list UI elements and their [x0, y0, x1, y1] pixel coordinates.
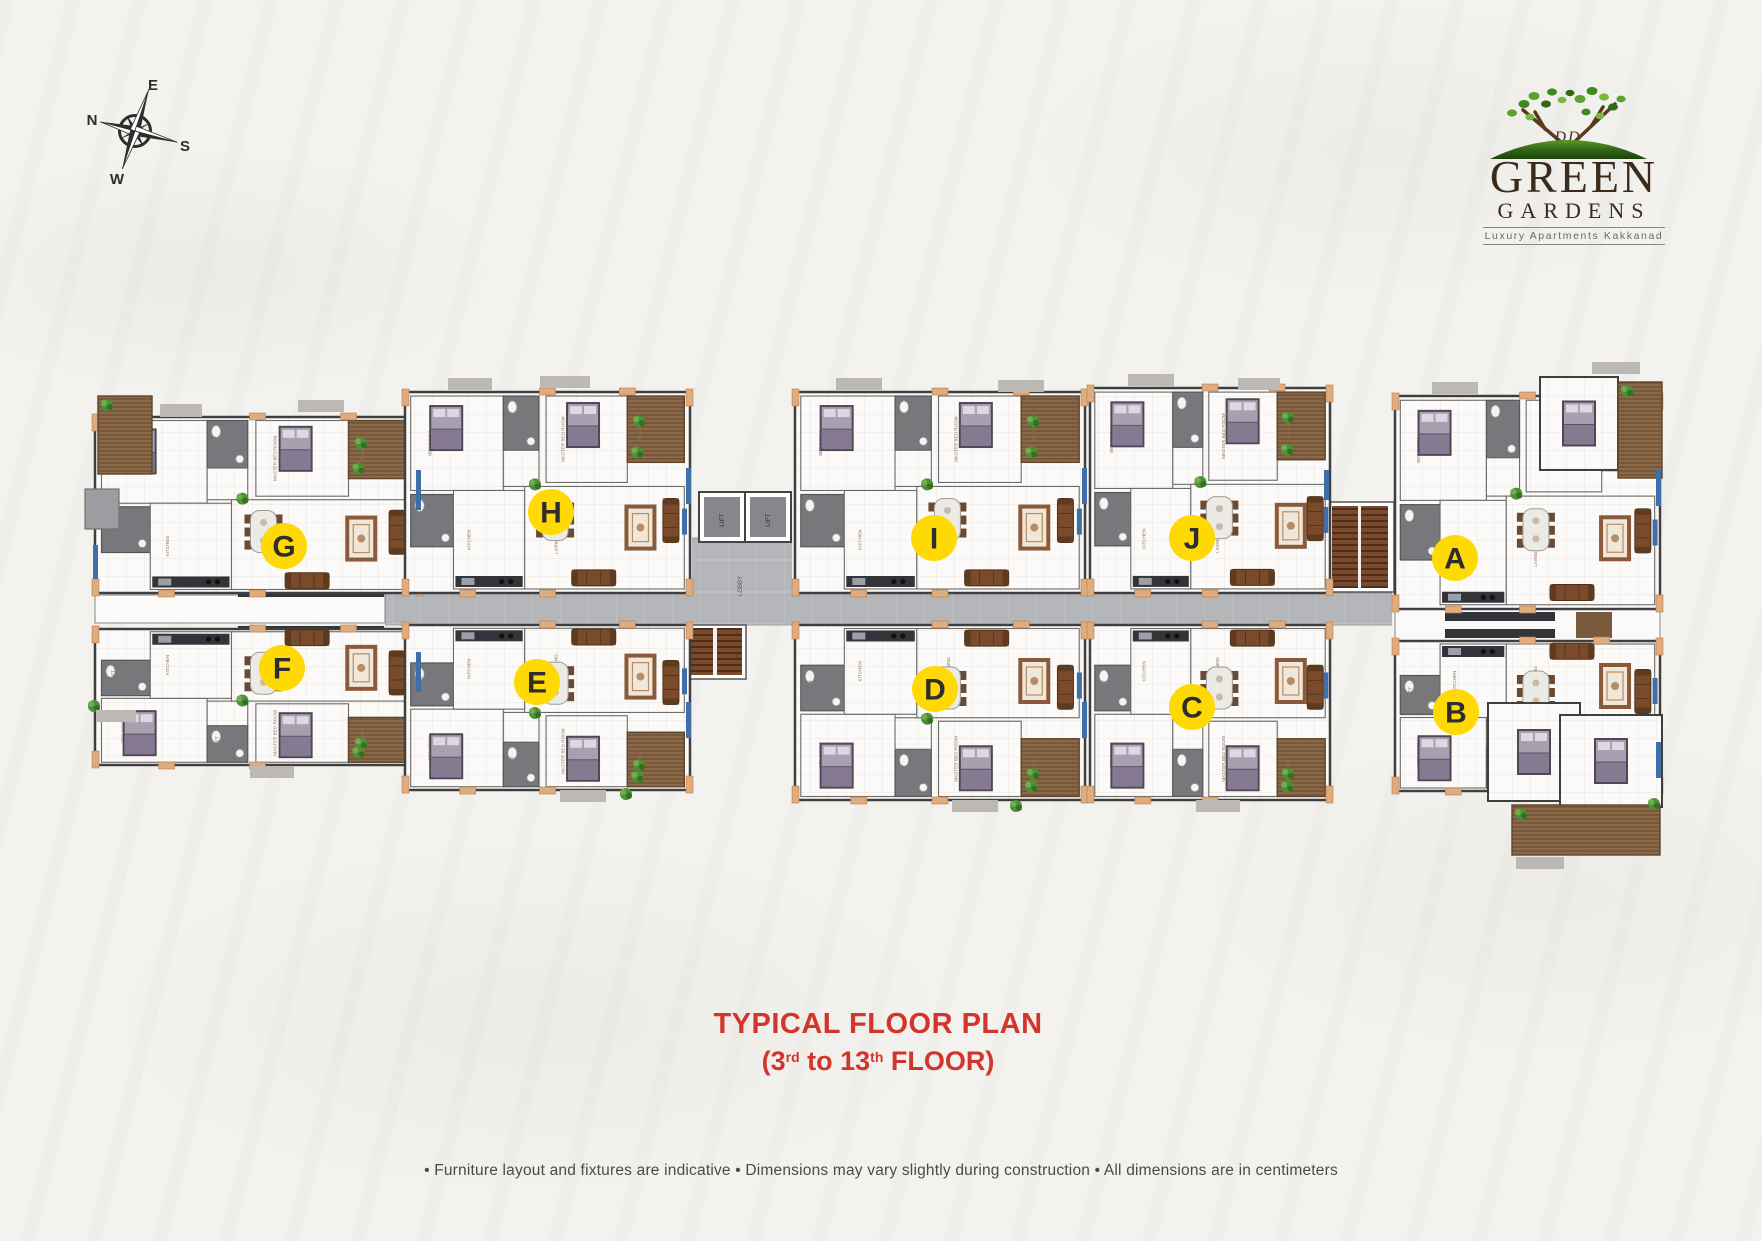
room-label-toilet: TOILET: [1492, 421, 1497, 437]
logo-line1: GREEN: [1474, 156, 1674, 198]
room-label-toilet: TOILET: [418, 512, 423, 528]
room-label-toilet: TOILET: [1178, 765, 1183, 781]
apartment-E: BED ROOMTOILETMASTER BED ROOMBALCONYTOIL…: [402, 621, 693, 794]
lift-label: LIFT: [719, 513, 726, 526]
room-label-kitchen: KITCHEN: [857, 661, 862, 681]
room-label-kitchen: KITCHEN: [466, 530, 471, 550]
unit-marker-J[interactable]: J: [1169, 515, 1215, 561]
room-label-mbed: MASTER BED ROOM: [273, 710, 278, 756]
room-label-toilet: TOILET: [214, 436, 219, 452]
lift-core: LIFT LIFT: [699, 492, 791, 542]
room-label-toilet: TOILET: [1178, 412, 1183, 428]
unit-marker-A[interactable]: A: [1432, 535, 1478, 581]
room-label-toilet: TOILET: [809, 512, 814, 528]
room-label-toilet: TOILET: [110, 670, 115, 686]
room-label-toilet: TOILET: [1407, 687, 1412, 703]
unit-marker-C[interactable]: C: [1169, 684, 1215, 730]
room-label-toilet: TOILET: [214, 736, 219, 752]
compass-n: N: [87, 112, 98, 129]
logo: GREEN GARDENS Luxury Apartments Kakkanad: [1474, 156, 1674, 245]
apartment-D: BED ROOMTOILETMASTER BED ROOMBALCONYTOIL…: [792, 621, 1088, 804]
compass-w: W: [110, 171, 125, 188]
apartment-F: BED ROOMTOILETMASTER BED ROOMBALCONYTOIL…: [92, 625, 423, 769]
unit-marker-label: D: [924, 674, 946, 707]
plan-title: TYPICAL FLOOR PLAN (3rd to 13th FLOOR): [578, 1008, 1178, 1077]
room-label-kitchen: KITCHEN: [1452, 671, 1457, 691]
logo-line2: GARDENS: [1474, 199, 1674, 223]
page: LOBBY LIFT LIFT: [0, 0, 1762, 1241]
compass-e: E: [148, 77, 158, 94]
room-label-kitchen: KITCHEN: [165, 536, 170, 556]
lobby-label: LOBBY: [738, 576, 744, 596]
room-label-mbed: MASTER BED ROOM: [561, 728, 566, 774]
unit-marker-D[interactable]: D: [912, 666, 958, 712]
room-label-mbed: MASTER BED ROOM: [561, 416, 566, 462]
room-label-mbed: MASTER BED ROOM: [953, 736, 958, 782]
unit-marker-label: C: [1181, 692, 1203, 725]
room-label-kitchen: KITCHEN: [466, 659, 471, 679]
logo-tagline: Luxury Apartments Kakkanad: [1483, 227, 1666, 245]
unit-marker-label: A: [1444, 543, 1466, 576]
unit-marker-label: I: [930, 523, 938, 556]
compass-s: S: [180, 138, 190, 155]
unit-marker-label: E: [527, 667, 547, 700]
unit-marker-label: F: [273, 653, 291, 686]
room-label-toilet: TOILET: [510, 756, 515, 772]
apartment-J: BED ROOMTOILETMASTER BED ROOMBALCONYTOIL…: [1087, 384, 1333, 597]
compass: N E S W: [87, 77, 190, 188]
unit-marker-I[interactable]: I: [911, 515, 957, 561]
logo-leaves: [1507, 87, 1626, 120]
unit-marker-label: J: [1184, 523, 1201, 556]
room-label-kitchen: KITCHEN: [857, 530, 862, 550]
logo-art: DD: [1490, 87, 1647, 159]
unit-marker-G[interactable]: G: [261, 523, 307, 569]
unit-marker-F[interactable]: F: [259, 645, 305, 691]
unit-marker-label: G: [272, 531, 295, 564]
room-label-toilet: TOILET: [1101, 680, 1106, 696]
staircase-right: [1328, 502, 1394, 592]
room-label-mbed: MASTER BED ROOM: [953, 416, 958, 462]
room-label-kitchen: KITCHEN: [165, 655, 170, 675]
room-label-toilet: TOILET: [902, 415, 907, 431]
room-label-toilet: TOILET: [902, 765, 907, 781]
lift-label: LIFT: [765, 513, 772, 526]
unit-marker-label: H: [540, 497, 562, 530]
room-label-kitchen: KITCHEN: [1142, 661, 1147, 681]
room-label-toilet: TOILET: [1101, 511, 1106, 527]
room-label-toilet: TOILET: [809, 680, 814, 696]
room-label-mbed: MASTER BED ROOM: [273, 435, 278, 481]
plan-title-line2: (3rd to 13th FLOOR): [578, 1046, 1178, 1077]
unit-marker-label: B: [1445, 697, 1467, 730]
right-cluster-divider: [1395, 609, 1660, 641]
footnote: • Furniture layout and fixtures are indi…: [0, 1162, 1762, 1180]
unit-marker-B[interactable]: B: [1433, 689, 1479, 735]
room-label-mbed: MASTER BED ROOM: [1221, 736, 1226, 782]
room-label-toilet: TOILET: [1407, 524, 1412, 540]
plan-title-line1: TYPICAL FLOOR PLAN: [578, 1008, 1178, 1041]
unit-marker-E[interactable]: E: [514, 659, 560, 705]
unit-marker-H[interactable]: H: [528, 489, 574, 535]
room-label-mbed: MASTER BED ROOM: [1221, 413, 1226, 459]
room-label-kitchen: KITCHEN: [1142, 529, 1147, 549]
apartment-I: BED ROOMTOILETMASTER BED ROOMBALCONYTOIL…: [792, 388, 1088, 597]
room-label-toilet: TOILET: [510, 415, 515, 431]
